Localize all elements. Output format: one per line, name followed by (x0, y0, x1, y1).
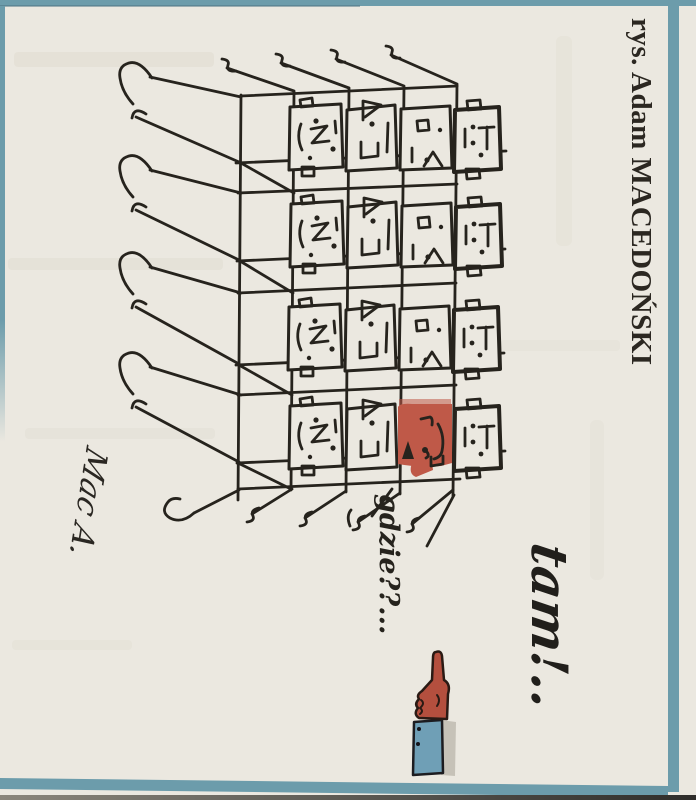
window-row (289, 98, 501, 179)
window-row (289, 397, 501, 478)
frame-left-stripe (0, 6, 5, 442)
window-row (290, 195, 502, 276)
window-row (288, 298, 500, 379)
page-edge-shadow (0, 795, 696, 800)
sleeve-button (417, 727, 421, 731)
frame-right-stripe (668, 4, 679, 792)
caption-gdzie: gdzie??... (373, 494, 404, 634)
cartoon-page: gdzie??... tam!.. Mac A. rys. Adam MACED… (0, 0, 696, 800)
artist-credit: rys. Adam MACEDOŃSKI (625, 18, 658, 366)
sleeve-button (416, 742, 420, 746)
frame-top-shadow (0, 5, 360, 7)
caption-tam: tam!.. (520, 540, 579, 713)
